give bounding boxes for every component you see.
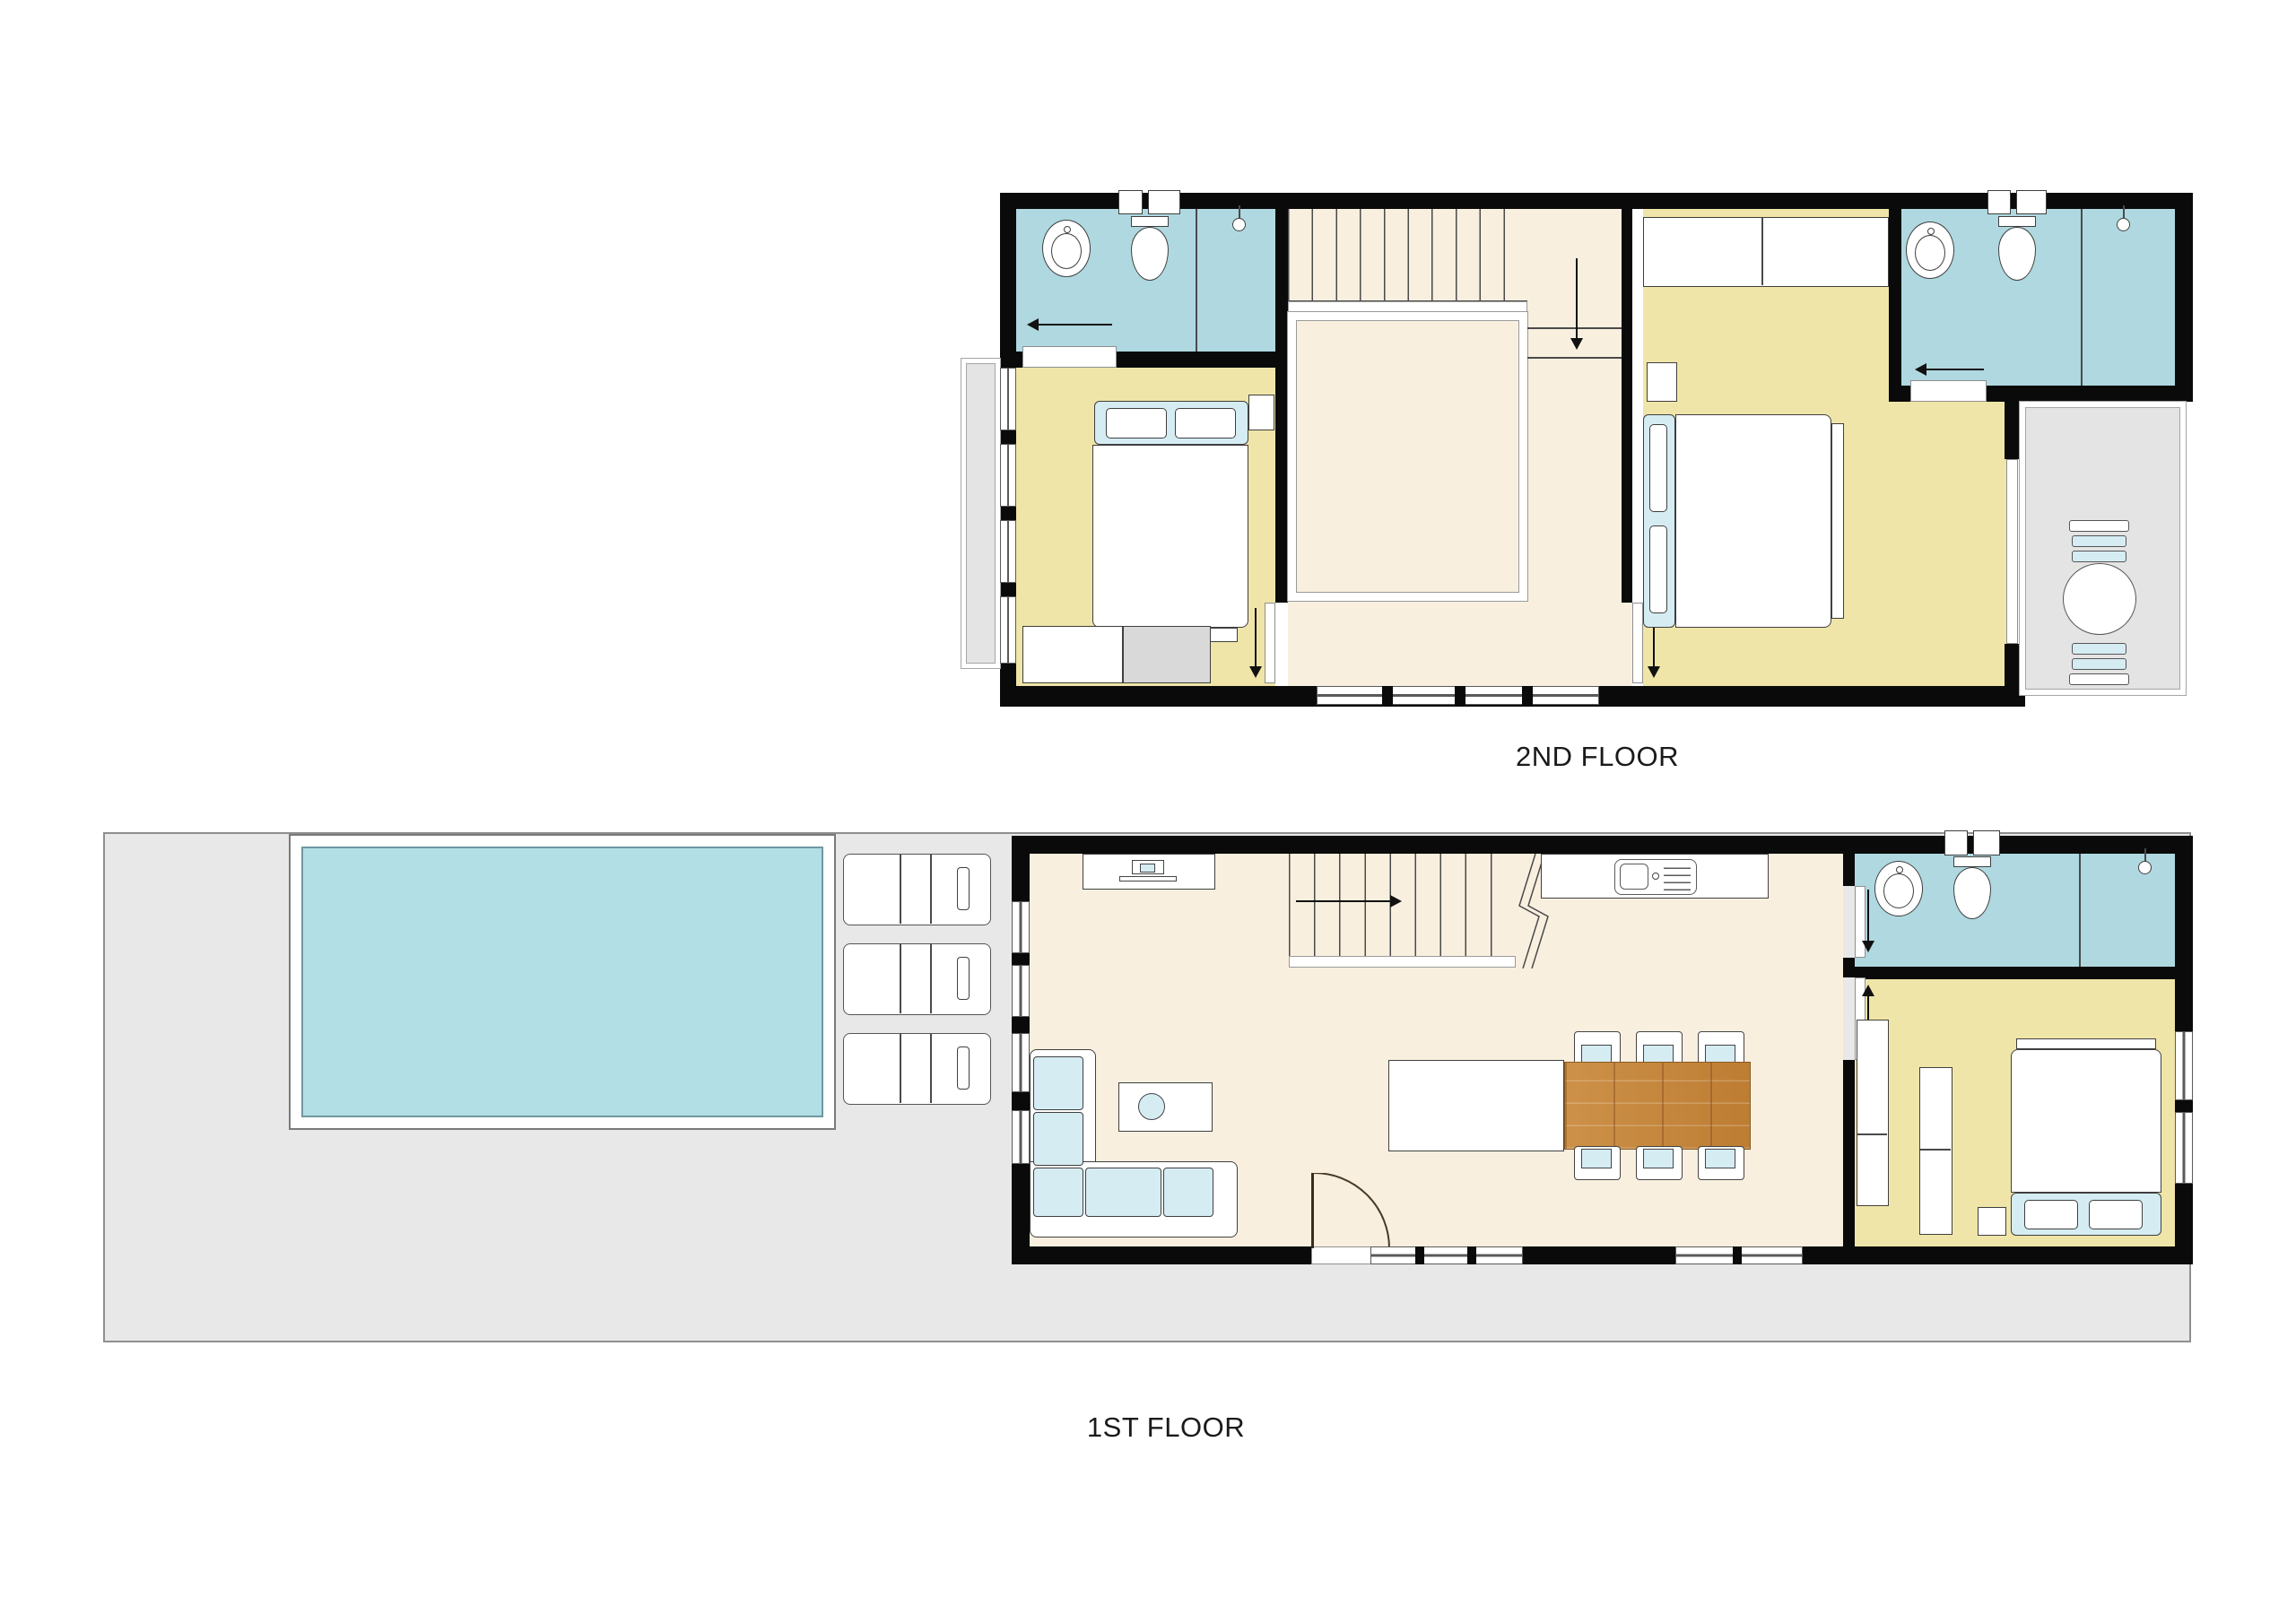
shower-1-head-icon (1232, 218, 1246, 231)
toilet-2-tank (1998, 216, 2036, 227)
floor-plan-1st (103, 832, 2195, 1342)
window-mullion (1415, 1246, 1424, 1264)
floor-plan-2nd (1000, 193, 2193, 707)
bathroom-1-door (1022, 346, 1117, 368)
sofa-cushion-corner (1033, 1168, 1083, 1217)
sofa-cushion (1033, 1056, 1083, 1110)
bedroom-2-wardrobe (1643, 217, 1889, 287)
lounger-pillow (957, 957, 970, 1000)
sofa-cushion (1163, 1168, 1213, 1217)
chair-seat (1705, 1149, 1735, 1168)
sink-drain (1896, 866, 1903, 873)
bed-headboard (2011, 1193, 2161, 1236)
wall-hall-bedroom2 (1622, 209, 1632, 603)
shower-2-head-icon (2117, 218, 2130, 231)
pool-lounger-3 (843, 1033, 991, 1105)
bedroom-1-dresser (1123, 626, 1211, 683)
sink-2-basin (1915, 235, 1945, 271)
sink-basin (1883, 873, 1914, 908)
window-bedroom-right-1 (2175, 1031, 2193, 1100)
floor-2-label: 2ND FLOOR (1516, 741, 1679, 773)
window-living-bottom-a (1370, 1246, 1523, 1264)
balcony-sliding-door (2006, 459, 2018, 644)
wall-bathroom2-left (1889, 209, 1901, 386)
lounger-line (930, 855, 932, 924)
staircase-down (1288, 209, 1527, 301)
bedroom-2-door-leaf (1632, 603, 1643, 683)
window-bedroom1-left-2 (1000, 444, 1016, 507)
entrance-door-swing (1311, 1173, 1392, 1252)
wall-bedroom1-hall (1275, 209, 1288, 603)
winder-step-line-2 (1527, 357, 1622, 359)
tv-screen (1132, 860, 1164, 874)
kitchen-sink-icon (1614, 859, 1697, 895)
bed-1-body (1092, 445, 1248, 628)
coffee-table (1118, 1082, 1213, 1132)
lounger-line (900, 855, 901, 924)
bed-1-headboard (1094, 401, 1248, 445)
balcony-chair-top (2069, 520, 2129, 568)
shower-1-partition (1196, 209, 1197, 352)
toilet-1-cistern-b (1148, 190, 1180, 214)
bathroom-2-door (1910, 380, 1987, 402)
bed-2-headboard (1643, 414, 1675, 628)
bed-head-fold (2016, 1038, 2156, 1049)
bed-2-pillow-upper (1649, 424, 1667, 512)
toilet-tank (1953, 856, 1991, 867)
sink-2-icon (1906, 221, 1954, 279)
bed-pillow-right (2089, 1200, 2143, 1229)
sink-1-icon (1042, 220, 1091, 277)
sink-2-drain (1927, 228, 1935, 235)
juliet-balcony (961, 359, 1000, 668)
tv-screen-inner (1140, 864, 1155, 873)
chair-slat (2072, 643, 2126, 655)
wall-right-upper (2175, 193, 2193, 402)
tv-cabinet (1083, 854, 1215, 890)
bathroom-sink-icon (1874, 861, 1923, 916)
stairs-down-arrow-icon (1568, 258, 1586, 350)
dining-chair (1636, 1146, 1683, 1180)
stair-base-edge (1289, 956, 1516, 968)
toilet-1-tank (1131, 216, 1169, 227)
balcony-wall-stub-lower (2005, 644, 2020, 686)
sink-basin (1620, 864, 1648, 890)
lounger-line (900, 1034, 901, 1103)
bed-1-pillow-left (1106, 408, 1167, 439)
cabinet-divider (1920, 1149, 1951, 1151)
lounger-line (930, 1034, 932, 1103)
window-mullion (1733, 1246, 1742, 1264)
pool-lounger-2 (843, 943, 991, 1015)
chair-slat (2072, 658, 2126, 670)
window-living-left-3 (1012, 1033, 1030, 1092)
sofa-cushion (1033, 1112, 1083, 1166)
floorplan-page: 2ND FLOOR (0, 0, 2296, 1624)
window-mullion (1382, 686, 1393, 705)
dining-chair (1574, 1031, 1621, 1065)
dining-chair (1698, 1146, 1744, 1180)
coffee-table-bowl (1138, 1093, 1165, 1120)
dining-chair (1574, 1146, 1621, 1180)
bed-body (2011, 1049, 2161, 1193)
sink-drainer (1664, 864, 1691, 890)
bathroom-2-entry-arrow-icon (1915, 362, 1984, 377)
nightstand-2 (1647, 362, 1677, 402)
window-bedroom1-left-3 (1000, 520, 1016, 583)
wall-bottom (1012, 1246, 2193, 1264)
toilet-1-cistern-a (1118, 190, 1143, 214)
bedroom-wardrobe (1857, 1020, 1889, 1206)
lounger-pillow (957, 1046, 970, 1090)
wardrobe-divider (1857, 1133, 1887, 1135)
wardrobe-divider (1761, 218, 1763, 285)
swimming-pool (301, 847, 823, 1117)
wall-living-divider-c (1843, 1060, 1855, 1246)
bed-1-pillow-right (1175, 408, 1236, 439)
tv-stand (1119, 876, 1177, 881)
bed-2-pillow-lower (1649, 525, 1667, 613)
dining-chair (1698, 1031, 1744, 1065)
tv-icon (1119, 860, 1177, 883)
chair-seat (1581, 1149, 1612, 1168)
lounger-line (930, 944, 932, 1013)
kitchen-island (1388, 1060, 1564, 1151)
shower-2-partition (2081, 209, 2083, 386)
chair-slat (2069, 520, 2129, 532)
chair-seat (1643, 1149, 1674, 1168)
stairs-up-arrow-icon (1296, 893, 1402, 909)
window-mullion (1455, 686, 1465, 705)
shower-head-icon (2138, 861, 2152, 874)
pool-lounger-1 (843, 854, 991, 925)
balcony-wall-stub-upper (2005, 402, 2020, 459)
toilet-2-cistern-b (2016, 190, 2047, 214)
window-living-left-1 (1012, 901, 1030, 953)
chair-slat (2072, 551, 2126, 562)
bedroom-tall-cabinet (1919, 1067, 1952, 1235)
toilet-2-cistern-a (1987, 190, 2011, 214)
door-arc (1314, 1173, 1389, 1248)
sofa-cushion (1085, 1168, 1161, 1217)
sink-1-drain (1064, 226, 1071, 233)
wall-living-divider-a (1843, 854, 1855, 886)
shower-partition (2079, 854, 2081, 967)
toilet-cistern-a (1944, 830, 1968, 855)
bathroom-1-entry-arrow-icon (1027, 317, 1112, 332)
bedroom-nightstand (1978, 1207, 2006, 1236)
balcony-chair-bottom (2069, 638, 2129, 685)
window-bedroom1-left-1 (1000, 368, 1016, 430)
window-living-left-2 (1012, 965, 1030, 1017)
bed-2-foot-fold (1831, 423, 1844, 619)
window-bedroom1-left-4 (1000, 596, 1016, 664)
toilet-cistern-b (1973, 830, 2000, 855)
bed-pillow-left (2024, 1200, 2078, 1229)
bedroom-1-door-leaf (1265, 603, 1275, 683)
lounger-line (900, 944, 901, 1013)
chair-slat (2069, 673, 2129, 685)
dining-table (1564, 1062, 1751, 1150)
window-living-left-4 (1012, 1110, 1030, 1164)
dining-chair (1636, 1031, 1683, 1065)
wall-living-divider-b (1843, 958, 1855, 977)
bed-2-body (1675, 414, 1831, 628)
void-over-living (1288, 312, 1527, 601)
nightstand-1 (1248, 395, 1274, 430)
balcony-round-table (2063, 563, 2136, 635)
bathroom-entry-arrow-icon (1859, 890, 1877, 952)
window-mullion (1467, 1246, 1476, 1264)
wall-bathroom-bedroom (1855, 967, 2175, 979)
chair-slat (2072, 535, 2126, 547)
wall-top (1012, 836, 2193, 854)
bedroom-1-desk (1022, 626, 1123, 683)
lounger-pillow (957, 867, 970, 910)
floor-1-label: 1ST FLOOR (1087, 1411, 1245, 1444)
stair-landing-edge (1288, 301, 1527, 312)
window-mullion (1522, 686, 1533, 705)
bedroom-2-floor-ext (1889, 402, 2007, 686)
window-bedroom-right-2 (2175, 1112, 2193, 1184)
sink-tap (1652, 873, 1659, 880)
bedroom-1-entry-arrow-icon (1247, 608, 1265, 678)
sink-1-basin (1051, 233, 1082, 269)
